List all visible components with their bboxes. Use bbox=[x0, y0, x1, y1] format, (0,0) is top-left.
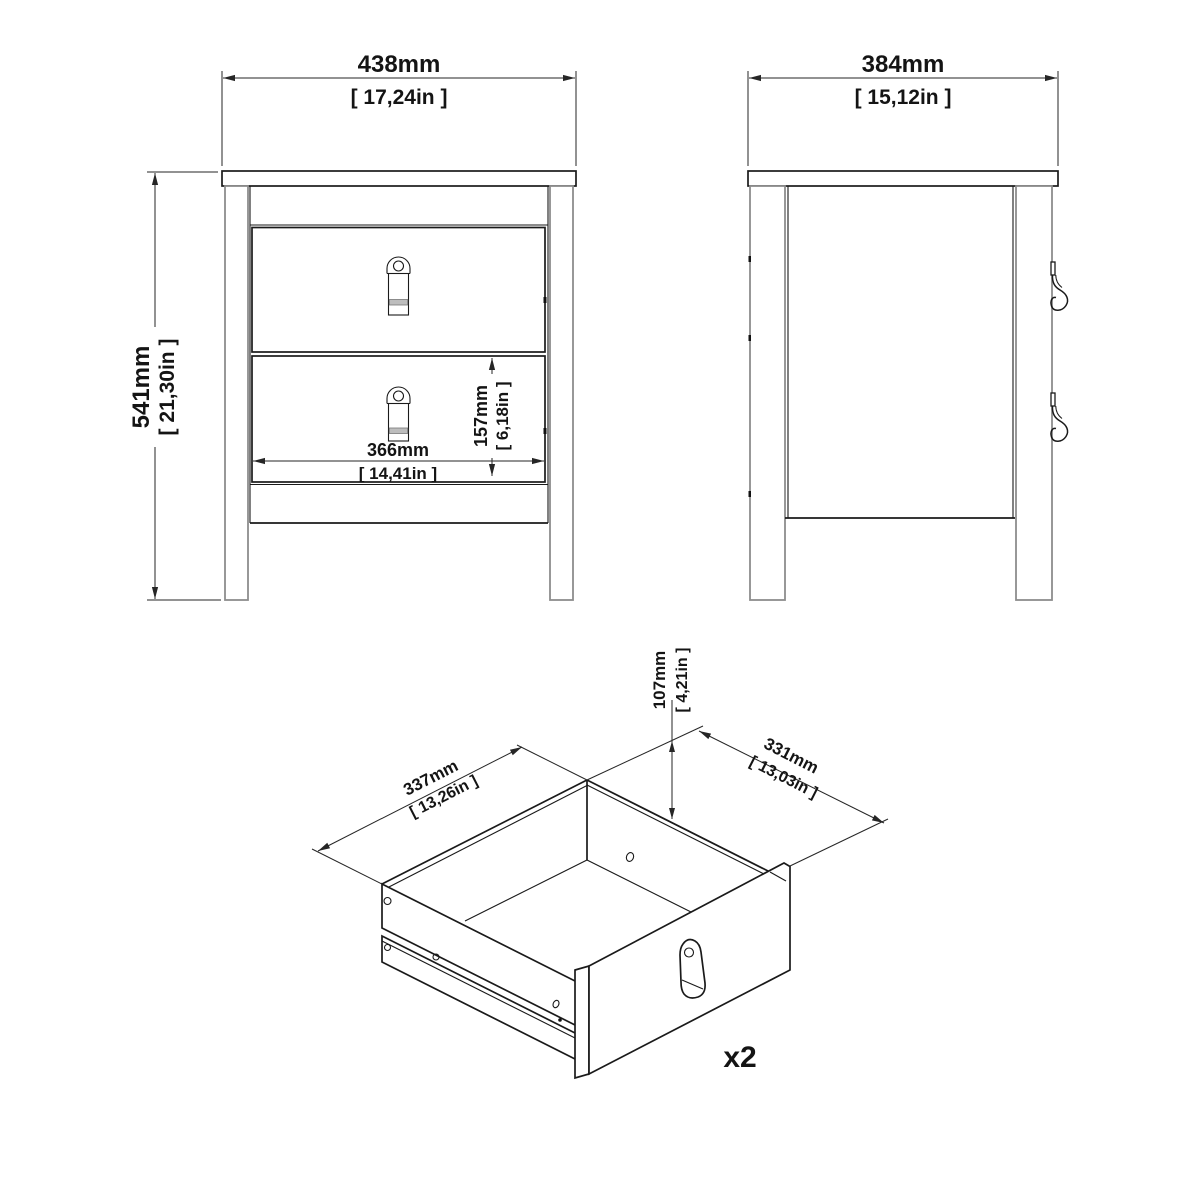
front-height-in-label: [ 21,30in ] bbox=[156, 339, 179, 436]
side-depth-mm-label: 384mm bbox=[862, 51, 945, 78]
drawer-stop-peg-1 bbox=[544, 297, 547, 303]
drawer-right-rim-outer bbox=[587, 780, 768, 871]
front-left-leg bbox=[225, 186, 248, 600]
furniture-dimension-diagram: 438mm [ 17,24in ] 541mm [ 21,30in ] 366m… bbox=[0, 0, 1200, 1200]
drawer-floor-back-edge bbox=[465, 860, 587, 921]
inner-width-mm-label: 366mm bbox=[367, 440, 429, 460]
arrow-up bbox=[669, 741, 675, 752]
drawer-isometric-view: 337mm [ 13,26in ] 331mm [ 13,03in ] 107m… bbox=[312, 648, 888, 1078]
drawer-height-dimension: 107mm [ 4,21in ] bbox=[650, 648, 691, 819]
side-front-leg bbox=[750, 186, 785, 600]
extension-line bbox=[587, 726, 703, 780]
front-top-board bbox=[222, 171, 576, 186]
drawer-wall-screw-hole bbox=[625, 852, 635, 863]
drawer-stop-peg-2 bbox=[544, 428, 547, 434]
side-top-board bbox=[748, 171, 1058, 186]
cam-mark-3 bbox=[749, 491, 752, 497]
drawer-side-dimension: 337mm [ 13,26in ] bbox=[312, 745, 587, 884]
rotated-height-labels: 541mm [ 21,30in ] bbox=[128, 327, 179, 447]
rotated-drawer-height-labels: 157mm [ 6,18in ] bbox=[471, 374, 512, 458]
handle-loop-inner bbox=[1056, 406, 1062, 419]
cam-mark-1 bbox=[749, 256, 752, 262]
drawer-back-rim-inner bbox=[385, 785, 588, 889]
rotated-337-labels: 337mm [ 13,26in ] bbox=[396, 751, 480, 821]
rotated-107-labels: 107mm [ 4,21in ] bbox=[650, 648, 691, 713]
side-depth-in-label: [ 15,12in ] bbox=[855, 86, 952, 109]
technical-drawing-page: 438mm [ 17,24in ] 541mm [ 21,30in ] 366m… bbox=[0, 0, 1200, 1200]
side-depth-dimension: 384mm [ 15,12in ] bbox=[748, 51, 1058, 166]
drawer-quantity-label: x2 bbox=[723, 1041, 756, 1074]
drawer-height-mm-label: 107mm bbox=[650, 651, 669, 710]
handle-loop-inner bbox=[1056, 275, 1062, 288]
inner-width-in-label: [ 14,41in ] bbox=[359, 464, 437, 483]
extension-line bbox=[312, 849, 382, 884]
handle-strap-fold-band bbox=[389, 300, 407, 306]
side-view: 384mm [ 15,12in ] bbox=[748, 51, 1068, 600]
drawer-height-in-label: [ 4,21in ] bbox=[674, 648, 691, 713]
side-back-leg bbox=[1016, 186, 1052, 600]
front-view: 438mm [ 17,24in ] 541mm [ 21,30in ] 366m… bbox=[128, 51, 576, 600]
front-right-leg bbox=[550, 186, 573, 600]
front-height-mm-label: 541mm bbox=[128, 346, 155, 429]
side-handle-2 bbox=[1051, 393, 1068, 441]
drawer-front-mm-label: 157mm bbox=[471, 385, 491, 447]
drawer-width-dimension: 331mm [ 13,03in ] bbox=[587, 726, 888, 866]
front-width-in-label: [ 17,24in ] bbox=[351, 86, 448, 109]
rail-pin bbox=[558, 1018, 562, 1022]
front-width-dimension: 438mm [ 17,24in ] bbox=[222, 51, 576, 166]
handle-strap-fold-band bbox=[389, 428, 407, 434]
front-height-dimension: 541mm [ 21,30in ] bbox=[128, 172, 221, 600]
front-width-mm-label: 438mm bbox=[358, 51, 441, 78]
handle-strap-edge bbox=[1051, 262, 1055, 275]
drawer-floor-right-edge bbox=[587, 860, 691, 912]
cam-mark-2 bbox=[749, 335, 752, 341]
extension-line bbox=[517, 745, 587, 780]
front-drawer-1 bbox=[252, 228, 545, 353]
drawer-front-panel-edge bbox=[575, 966, 589, 1078]
handle-strap-edge bbox=[1051, 393, 1055, 406]
rotated-331-labels: 331mm [ 13,03in ] bbox=[747, 732, 831, 802]
extension-line bbox=[790, 819, 888, 866]
side-handle-1 bbox=[1051, 262, 1068, 310]
drawer-front-in-label: [ 6,18in ] bbox=[493, 382, 512, 451]
drawer-right-rim-inner bbox=[587, 785, 765, 875]
arrow-down bbox=[669, 808, 675, 819]
handle-loop bbox=[1051, 406, 1068, 441]
handle-loop bbox=[1051, 275, 1068, 310]
